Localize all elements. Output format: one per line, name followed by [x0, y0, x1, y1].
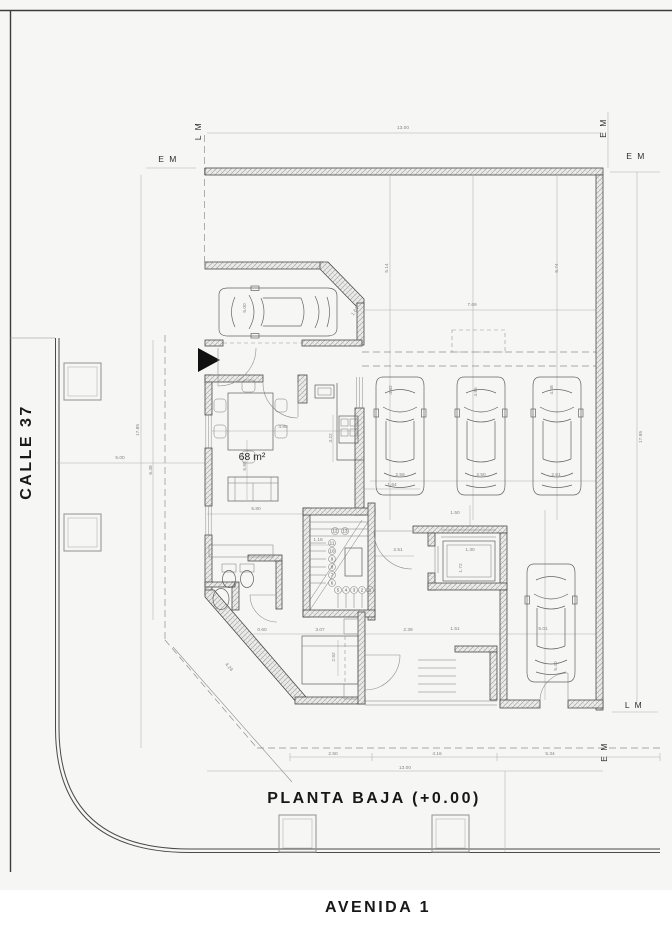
street-label-left: CALLE 37 — [18, 404, 35, 500]
dimension-label: 4.16 — [432, 751, 442, 757]
dimension-label: 5.40 — [553, 661, 559, 671]
street-label-bottom: AVENIDA 1 — [325, 899, 431, 916]
dimension-label: 5.00 — [242, 303, 248, 313]
dimension-label: 2.50 — [328, 751, 338, 757]
dimension-label: 2.39 — [403, 627, 413, 633]
dimension-label: 1.51 — [450, 626, 460, 632]
stair-step-number: 10 — [329, 549, 335, 554]
stair-wall — [368, 503, 375, 620]
wall-segment — [596, 175, 603, 710]
bath-wall — [276, 561, 282, 609]
dimension-label: 3.07 — [315, 627, 325, 633]
stair-step-number: 13 — [342, 529, 348, 534]
wall-segment — [205, 168, 603, 175]
dimension-label: 4.95 — [473, 387, 479, 397]
elevator-wall — [428, 583, 507, 590]
dimension-label: 6.49 — [148, 465, 154, 475]
elevator-wall — [500, 533, 507, 590]
dimension-label: 13.00 — [397, 125, 409, 131]
wall-segment — [205, 448, 212, 506]
dimension-label: 1.18 — [313, 537, 323, 543]
wall-segment — [568, 700, 603, 708]
dimension-label: 1.50 — [450, 510, 460, 516]
bath-wall — [205, 582, 235, 587]
stair-wall — [303, 508, 375, 515]
dimension-label: 7.69 — [467, 302, 477, 308]
dimension-label: 2.51 — [393, 547, 403, 553]
dimension-label: 2.50 — [476, 472, 486, 478]
wall-segment — [302, 340, 362, 346]
floor-plan-drawing: PLANTA BAJA (+0.00) AVENIDA 1 CALLE 37 6… — [0, 0, 672, 950]
dimension-label: 5.98 — [242, 461, 248, 471]
boundary-marker: L M — [193, 122, 203, 140]
stair-step-number: 11 — [330, 541, 335, 546]
dimension-label: 5.00 — [115, 455, 125, 461]
area-label: 68 m² — [239, 451, 266, 463]
dimension-label: 4.92 — [388, 385, 394, 395]
wall-segment — [455, 646, 497, 652]
elevator-wall — [428, 533, 435, 546]
dimension-label: 5.14 — [384, 263, 390, 273]
dimension-label: 2.61 — [551, 472, 561, 478]
dimension-label: 2.92 — [331, 652, 337, 662]
stair-wall — [303, 508, 310, 617]
wall-segment — [205, 262, 323, 269]
dimension-label: 13.00 — [399, 765, 411, 771]
boundary-marker: E M — [599, 742, 609, 762]
wall-segment — [490, 652, 497, 700]
boundary-marker: E M — [158, 154, 178, 164]
dimension-label: 5.01 — [538, 626, 548, 632]
dimension-label: 5.74 — [554, 263, 560, 273]
floor-plan-sheet: PLANTA BAJA (+0.00) AVENIDA 1 CALLE 37 6… — [0, 0, 672, 950]
dimension-label: 5.34 — [545, 751, 555, 757]
dimension-label: 1.72 — [458, 563, 464, 573]
stair-step-number: 12 — [332, 529, 338, 534]
wall-segment — [298, 375, 307, 403]
plan-title: PLANTA BAJA (+0.00) — [267, 790, 481, 807]
dimension-label: 4.68 — [549, 385, 555, 395]
dimension-label: 3.22 — [328, 433, 334, 443]
dimension-label: 17.85 — [135, 424, 141, 436]
dimension-label: 2.59 — [395, 472, 405, 478]
boundary-marker: E M — [598, 118, 608, 138]
dimension-label: 4.80 — [278, 424, 288, 430]
wall-segment — [500, 590, 507, 707]
elevator-wall — [413, 526, 507, 533]
wall-segment — [355, 408, 364, 515]
dimension-label: 1.30 — [465, 547, 475, 553]
boundary-marker: L M — [625, 700, 643, 710]
dimension-label: 5.80 — [251, 506, 261, 512]
wall-segment — [500, 700, 540, 708]
bath-wall — [248, 555, 282, 561]
wall-segment — [205, 340, 223, 346]
wall-segment — [358, 612, 365, 704]
dimension-label: 0.60 — [257, 627, 267, 633]
boundary-marker: E M — [626, 151, 646, 161]
dimension-label: 17.95 — [638, 431, 644, 443]
wall-segment — [295, 697, 365, 704]
dimension-label: 1.64 — [387, 482, 397, 488]
